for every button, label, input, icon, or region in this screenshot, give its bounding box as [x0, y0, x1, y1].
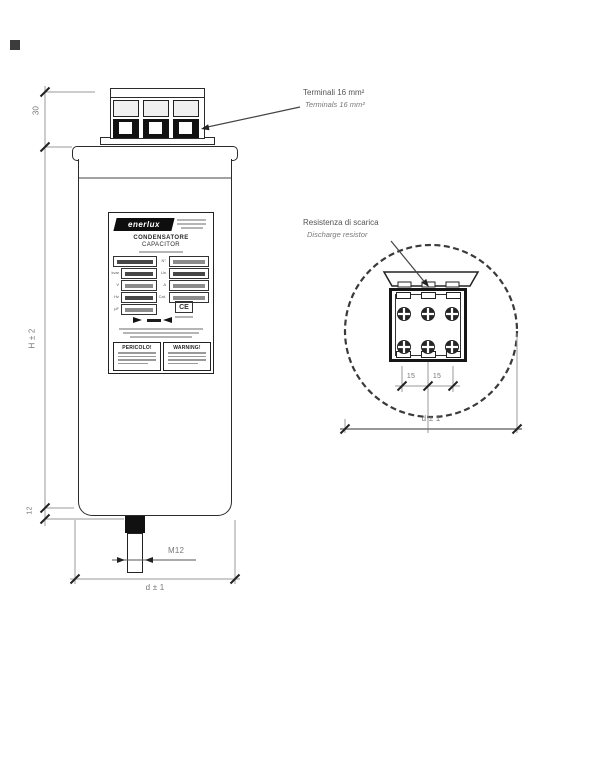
terminal-slot: [446, 351, 461, 358]
terminal-slot: [396, 351, 411, 358]
sheet-corner-mark: [10, 40, 20, 50]
terminal-slot: [396, 292, 411, 299]
field-label: kvar: [110, 268, 119, 277]
brand-logo: enerlux: [113, 218, 174, 231]
dim-top-diameter: d ± 1: [406, 414, 456, 423]
m12-dimension: [112, 557, 196, 563]
discharge-leader-line: [391, 241, 429, 287]
product-subtitle-line: [139, 251, 183, 253]
field-label: V: [110, 280, 119, 289]
dim-stud-length: 12: [27, 502, 34, 520]
terminal-screw-window: [179, 122, 192, 134]
dim-terminal-height: 30: [32, 102, 41, 120]
capacitor-technical-drawing: enerlux CONDENSATORE CAPACITOR kvar V Hz…: [0, 0, 600, 780]
field-label: Cat.: [157, 292, 166, 301]
warning-title: WARNING!: [164, 345, 210, 351]
terminal-block-top-strip: [111, 88, 204, 98]
field-un: [169, 268, 209, 279]
danger-box: PERICOLO!: [113, 342, 161, 371]
brand-address-line: [177, 219, 206, 221]
terminal-slot: [446, 292, 461, 299]
ce-mark-text: CE: [179, 304, 189, 311]
dim-front-width: d ± 1: [130, 583, 180, 592]
field-current: [169, 280, 209, 291]
terminal-flange-top-view: [384, 272, 478, 287]
brand-address-line: [181, 227, 203, 229]
terminal-screw-window: [119, 122, 132, 134]
ce-mark: CE: [175, 301, 193, 313]
terminal-screw-window: [149, 122, 162, 134]
terminal-slot: [421, 292, 436, 299]
terminal-block-inner-line: [395, 294, 461, 356]
stud-thread-m12: [127, 533, 143, 573]
fine-print-line: [123, 332, 199, 334]
field-voltage: [121, 280, 157, 291]
terminals-note-it: Terminali 16 mm²: [303, 88, 364, 97]
arrow-left-icon: [163, 317, 172, 323]
fine-print-line: [130, 336, 192, 338]
brand-address-line: [177, 223, 206, 225]
field-kvar: [121, 268, 157, 279]
front-width-dimension-lines: [70, 520, 240, 584]
stud-shoulder: [125, 516, 145, 533]
discharge-note-it: Resistenza di scarica: [303, 218, 379, 227]
dim-pitch-right: 15: [430, 373, 444, 380]
field-label: Un: [157, 268, 166, 277]
ce-sub-line: [175, 316, 193, 318]
terminal-window-icon: [143, 100, 169, 117]
product-title-it: CONDENSATORE: [109, 235, 213, 241]
terminal-slot: [421, 351, 436, 358]
nameplate-label: enerlux CONDENSATORE CAPACITOR kvar V Hz…: [108, 212, 214, 374]
brand-logo-text: enerlux: [115, 218, 173, 231]
product-title-en: CAPACITOR: [109, 242, 213, 248]
fine-print-line: [119, 328, 203, 330]
terminals-note-en: Terminals 16 mm²: [305, 100, 365, 109]
field-capacitance: [121, 304, 157, 315]
field-label: µF: [110, 304, 119, 313]
field-type: [113, 256, 157, 267]
field-label: N°: [157, 256, 166, 265]
field-label: Hz: [110, 292, 119, 301]
danger-title: PERICOLO!: [114, 345, 160, 351]
warning-box: WARNING!: [163, 342, 211, 371]
dim-stud-thread: M12: [168, 546, 184, 555]
arrow-right-icon: [133, 317, 142, 323]
terminals-leader-line: [201, 107, 300, 130]
terminal-window-icon: [113, 100, 139, 117]
arrow-center-bar: [147, 319, 161, 322]
dim-pitch-left: 15: [404, 373, 418, 380]
field-frequency: [121, 292, 157, 303]
terminal-window-icon: [173, 100, 199, 117]
dim-body-height: H ± 2: [28, 317, 37, 361]
field-label: A: [157, 280, 166, 289]
discharge-note-en: Discharge resistor: [307, 230, 367, 239]
field-serial: [169, 256, 209, 267]
